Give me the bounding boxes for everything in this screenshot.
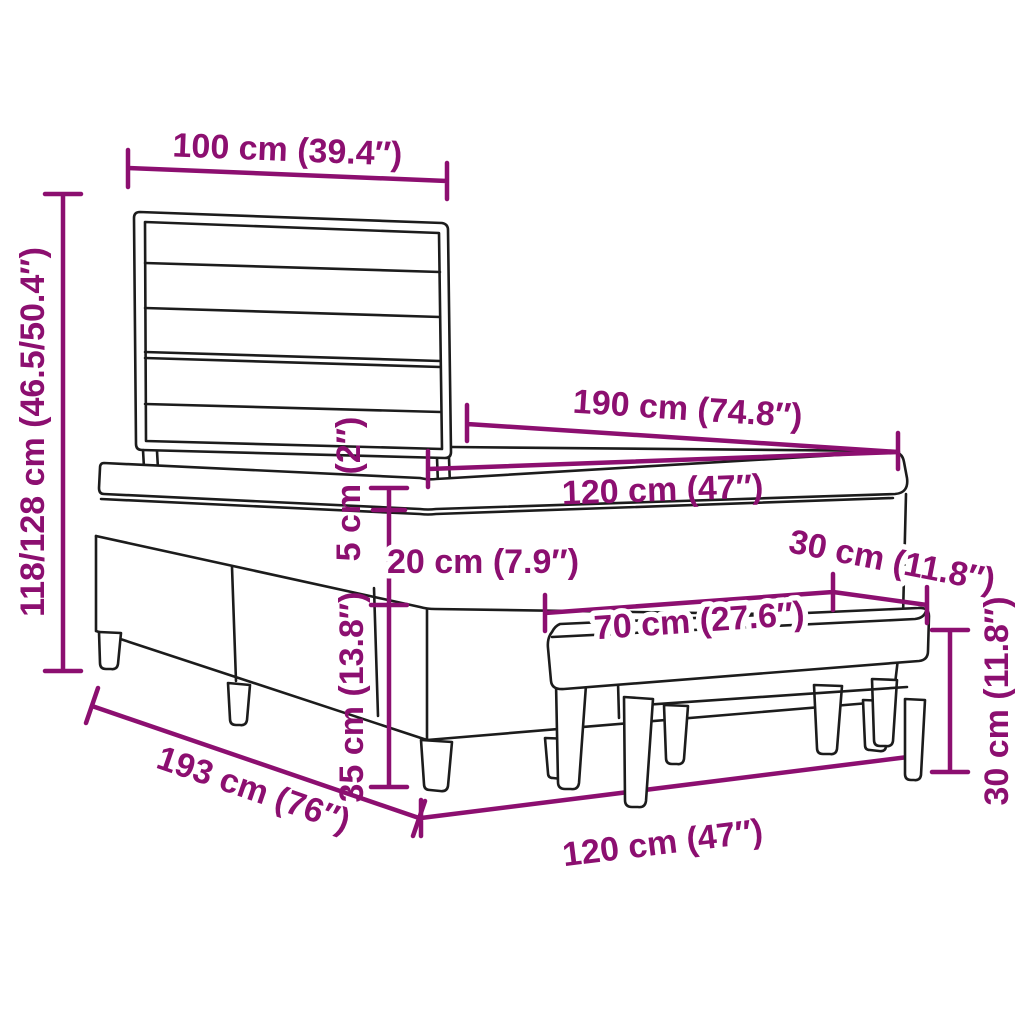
headboard-panel	[134, 212, 451, 458]
bed-width-bottom-label: 120 cm (47″)	[560, 812, 765, 874]
bench-leg	[905, 699, 925, 780]
bed-leg	[99, 632, 121, 669]
dim-bench-height-line	[932, 630, 968, 772]
frame-length-label: 193 cm (76″)	[152, 739, 355, 841]
bench-leg	[814, 685, 842, 754]
mattress-height-label: 20 cm (7.9″)	[387, 543, 579, 581]
bench-leg	[664, 705, 688, 764]
base-height-label: 35 cm (13.8″)	[333, 592, 371, 803]
total-height-label: 118/128 cm (46.5/50.4″)	[14, 247, 52, 617]
bed-leg	[421, 740, 452, 791]
bed-length-label: 190 cm (74.8″)	[572, 383, 804, 436]
bed-outline	[96, 212, 907, 791]
bench-height-label: 30 cm (11.8″)	[978, 596, 1016, 805]
dimension-diagram: 100 cm (39.4″) 118/128 cm (46.5/50.4″) 1…	[0, 0, 1024, 1024]
bed-width-top-label: 120 cm (47″)	[561, 468, 764, 513]
topper-height-label: 5 cm (2″)	[330, 417, 368, 562]
bench-depth-label: 30 cm (11.8″)	[786, 523, 999, 600]
headboard-width-label: 100 cm (39.4″)	[172, 126, 403, 173]
dim-frame-length-line	[86, 688, 425, 836]
bench-leg	[556, 683, 586, 789]
bed-leg	[228, 683, 250, 725]
